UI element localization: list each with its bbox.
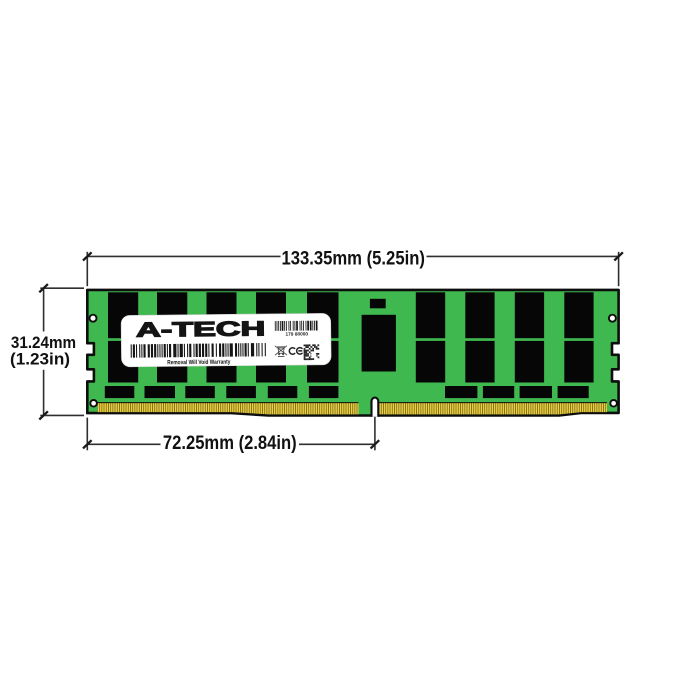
svg-text:72.25mm (2.84in): 72.25mm (2.84in) — [163, 433, 297, 454]
svg-text:(1.23in): (1.23in) — [10, 350, 70, 369]
svg-text:133.35mm (5.25in): 133.35mm (5.25in) — [281, 248, 425, 269]
svg-text:A-TECH: A-TECH — [136, 318, 265, 341]
svg-text:Removal Will Void Warranty: Removal Will Void Warranty — [167, 359, 231, 367]
svg-text:179 88000: 179 88000 — [285, 331, 308, 336]
